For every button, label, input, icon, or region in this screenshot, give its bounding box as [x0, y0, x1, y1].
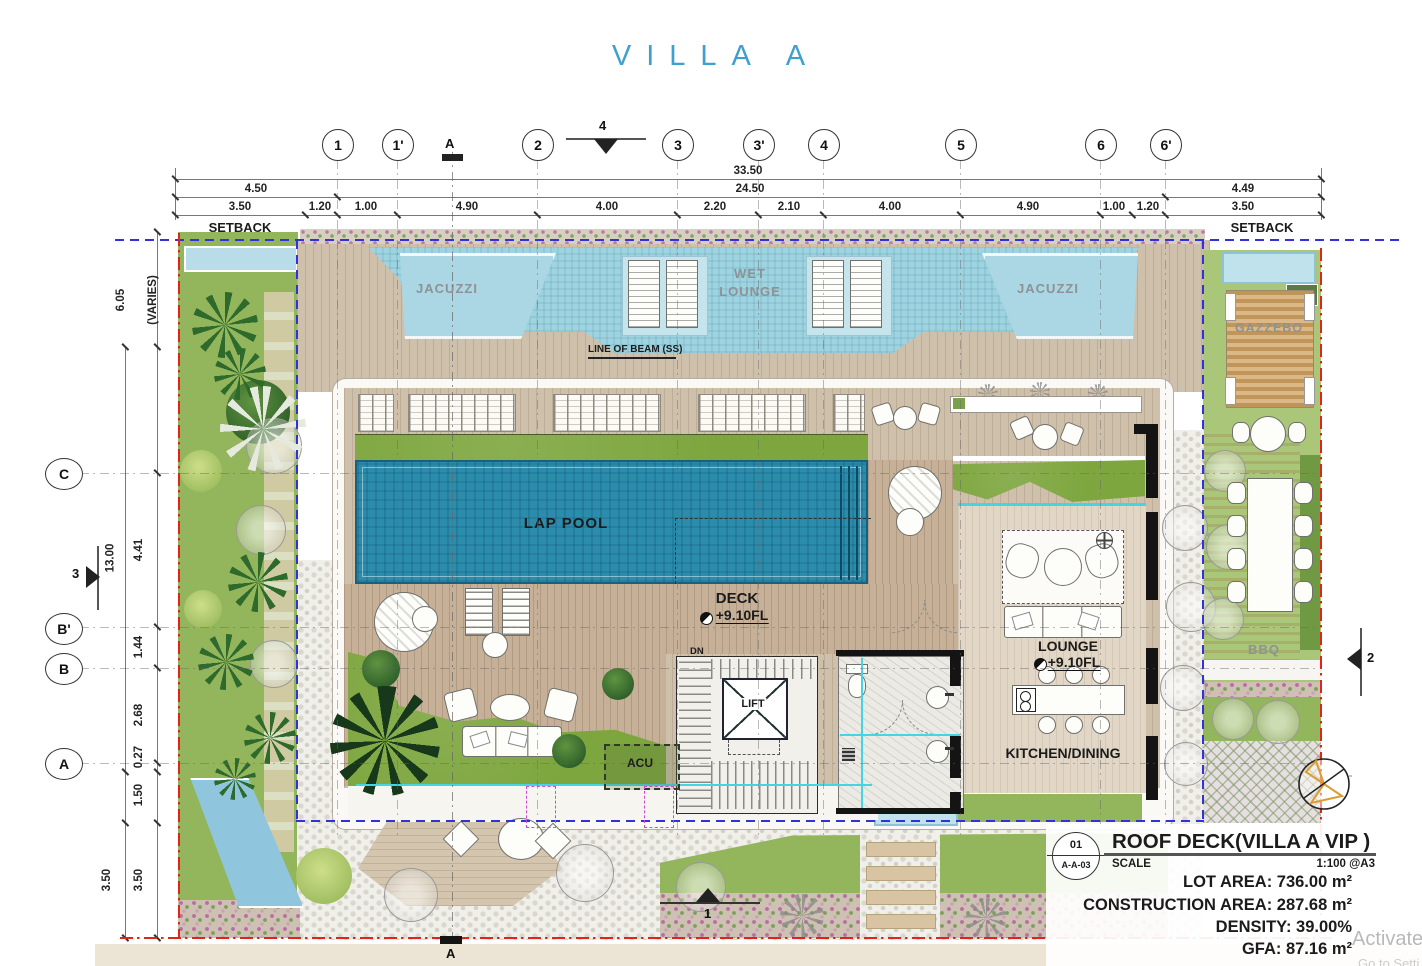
line-of-beam-label: LINE OF BEAM (SS)	[588, 344, 682, 355]
grid-bubble-3p: 3'	[743, 129, 775, 161]
dim-row2-2: 4.49	[1232, 183, 1254, 195]
section-marker-a-bottom: A	[446, 946, 455, 961]
setback-line-left	[296, 240, 298, 822]
grid-bubble-3: 3	[662, 129, 694, 161]
lounge-label: LOUNGE	[1038, 638, 1098, 654]
gfa: GFA: 87.16 m²	[1060, 940, 1352, 959]
lap-pool	[355, 460, 868, 584]
setback-line-bottom	[296, 820, 1204, 822]
wet-lounge-label-1: WET	[734, 266, 766, 281]
planter-counter	[950, 396, 1142, 413]
deck-level-label: +9.10FL	[716, 607, 769, 624]
section-marker-a-top: A	[445, 136, 454, 151]
grid-bubble-b: B	[45, 653, 83, 685]
construction-area: CONSTRUCTION AREA: 287.68 m²	[1060, 896, 1352, 915]
setback-label-left: SETBACK	[209, 220, 272, 235]
activate-watermark-line2: Go to Setti	[1358, 956, 1419, 966]
grid-bubble-2: 2	[522, 129, 554, 161]
gazzebo-roof	[1226, 290, 1314, 408]
dim-row2-1: 24.50	[736, 183, 765, 195]
sheet-ref: A-A-03	[1061, 860, 1090, 870]
bbq-label: BBQ	[1248, 642, 1280, 657]
activate-watermark-line1: Activate	[1352, 928, 1422, 951]
deck-label: DECK	[716, 590, 759, 607]
setback-label-right: SETBACK	[1231, 220, 1294, 235]
grid-bubble-c: C	[45, 458, 83, 490]
floor-plan-canvas: VILLA A JACUZZI JACUZZI WET LOUNGE LINE …	[0, 0, 1422, 966]
grid-bubble-5: 5	[945, 129, 977, 161]
drawing-title: ROOF DECK(VILLA A VIP )	[1112, 830, 1370, 854]
dim-row2-0: 4.50	[245, 183, 267, 195]
grid-bubble-1p: 1'	[382, 129, 414, 161]
grid-bubble-1: 1	[322, 129, 354, 161]
page-title: VILLA A	[556, 40, 876, 73]
ceiling-fan-icon	[1096, 532, 1113, 549]
wet-lounge-label-2: LOUNGE	[719, 284, 781, 299]
scale-value: 1:100 @A3	[1285, 858, 1375, 870]
section-marker-1: 1	[704, 906, 711, 921]
jacuzzi-left-label: JACUZZI	[416, 281, 478, 296]
grid-bubble-6: 6	[1085, 129, 1117, 161]
grid-bubble-6p: 6'	[1150, 129, 1182, 161]
east-water-strip	[1222, 252, 1316, 284]
section-line-a	[452, 152, 453, 942]
lot-area: LOT AREA: 736.00 m²	[1060, 873, 1352, 892]
dn-label: DN	[690, 646, 704, 657]
detail-number: 01	[1070, 839, 1082, 851]
dim-varies-value: 6.05	[115, 289, 127, 311]
property-line-left	[178, 233, 180, 939]
density: DENSITY: 39.00%	[1060, 918, 1352, 937]
setback-line-right	[1202, 240, 1204, 822]
setback-line-top	[115, 239, 1400, 241]
gazzebo-label: GAZZEBO	[1235, 321, 1303, 335]
dim-varies-note: (VARIES)	[147, 275, 159, 325]
north-compass-icon	[1296, 756, 1352, 812]
top-flower-strip	[300, 229, 1205, 244]
pool-planter-strip	[355, 434, 868, 461]
scale-label: SCALE	[1112, 858, 1151, 870]
grid-bubble-bp: B'	[45, 613, 83, 645]
section-marker-3: 3	[72, 566, 79, 581]
jacuzzi-right-label: JACUZZI	[1017, 281, 1079, 296]
grid-bubble-a: A	[45, 748, 83, 780]
section-marker-2: 2	[1367, 650, 1374, 665]
grid-bubble-4: 4	[808, 129, 840, 161]
section-marker-4: 4	[599, 118, 606, 133]
south-planter	[958, 794, 1142, 822]
lounge-green-band-edge	[953, 456, 1145, 461]
kitchen-dining-label: KITCHEN/DINING	[1005, 745, 1120, 761]
lift-label: LIFT	[739, 698, 766, 710]
